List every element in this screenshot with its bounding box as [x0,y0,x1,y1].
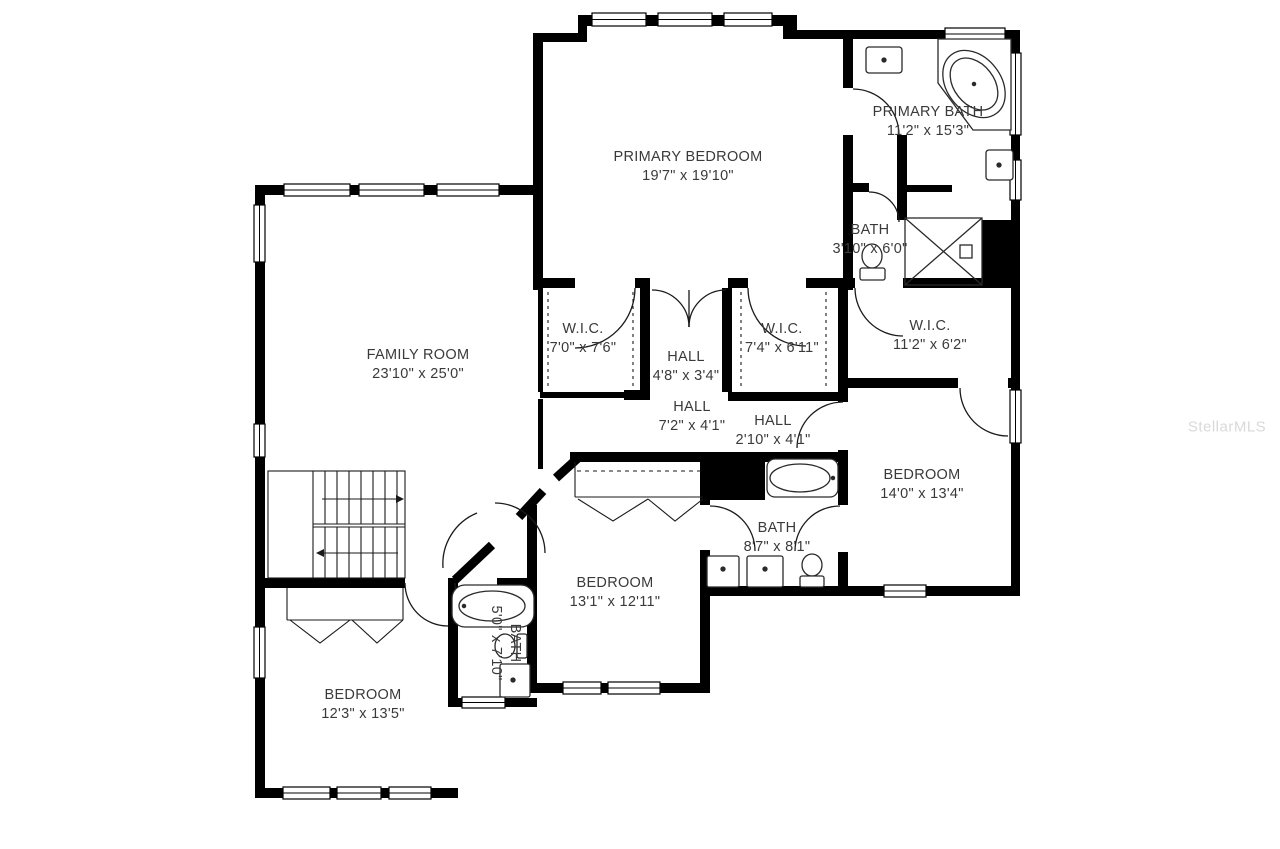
room-label-hall-2: HALL 7'2" x 4'1" [659,398,726,436]
room-label-hall-3: HALL 2'10" x 4'1" [735,412,810,450]
room-name: PRIMARY BEDROOM [614,148,763,167]
room-name: BEDROOM [570,574,661,593]
room-label-wic-1: W.I.C. 7'0" x 7'6" [550,320,617,358]
room-dims: 2'10" x 4'1" [735,431,810,450]
room-dims: 11'2" x 15'3" [873,122,984,141]
room-label-wic-3: W.I.C. 11'2" x 6'2" [893,317,967,355]
room-dims: 8'7" x 8'1" [744,538,811,557]
room-dims: 7'0" x 7'6" [550,339,617,358]
room-dims: 12'3" x 13'5" [321,705,404,724]
room-name: W.I.C. [550,320,617,339]
room-dims: 23'10" x 25'0" [367,365,470,384]
room-name: W.I.C. [745,320,819,339]
room-name: BEDROOM [880,466,963,485]
watermark: StellarMLS [1188,419,1266,436]
room-dims: 7'2" x 4'1" [659,417,726,436]
room-name: BATH [505,605,524,680]
room-label-bedroom-left: BEDROOM 12'3" x 13'5" [321,686,404,724]
room-dims: 5'0" x 7'10" [486,605,505,680]
room-dims: 13'1" x 12'11" [570,593,661,612]
room-name: W.I.C. [893,317,967,336]
room-dims: 3'10" x 6'0" [832,240,907,259]
floor-plan: PRIMARY BEDROOM 19'7" x 19'10" PRIMARY B… [0,0,1280,849]
room-label-bedroom-middle: BEDROOM 13'1" x 12'11" [570,574,661,612]
stairs-up-arrow [396,495,404,503]
room-label-bath-jackjill: BATH 8'7" x 8'1" [744,519,811,557]
diagonal-walls [455,458,578,580]
toilet [802,554,822,576]
room-name: HALL [659,398,726,417]
room-name: BATH [744,519,811,538]
floor-plan-drawing [0,0,1280,849]
room-label-primary-bath: PRIMARY BATH 11'2" x 15'3" [873,103,984,141]
room-name: BEDROOM [321,686,404,705]
staircase [268,471,405,578]
room-dims: 14'0" x 13'4" [880,485,963,504]
room-label-family-room: FAMILY ROOM 23'10" x 25'0" [367,346,470,384]
room-dims: 7'4" x 6'11" [745,339,819,358]
room-dims: 19'7" x 19'10" [614,167,763,186]
room-dims: 4'8" x 3'4" [653,367,720,386]
room-name: HALL [653,348,720,367]
room-label-primary-bedroom: PRIMARY BEDROOM 19'7" x 19'10" [614,148,763,186]
room-label-bath-small: BATH 5'0" x 7'10" [486,605,524,680]
room-dims: 11'2" x 6'2" [893,336,967,355]
room-name: FAMILY ROOM [367,346,470,365]
room-label-bath-wc: BATH 3'10" x 6'0" [832,221,907,259]
room-label-hall-1: HALL 4'8" x 3'4" [653,348,720,386]
room-label-wic-2: W.I.C. 7'4" x 6'11" [745,320,819,358]
stairs-down-arrow [316,549,324,557]
room-name: PRIMARY BATH [873,103,984,122]
room-name: BATH [832,221,907,240]
room-name: HALL [735,412,810,431]
room-label-bedroom-right: BEDROOM 14'0" x 13'4" [880,466,963,504]
